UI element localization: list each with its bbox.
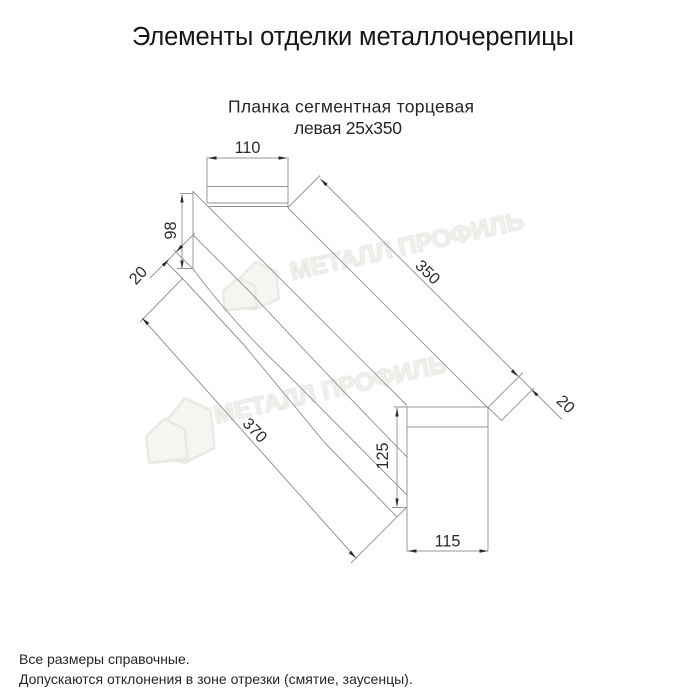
svg-text:125: 125 [374,442,392,469]
svg-text:Элементы отделки металлочерепи: Элементы отделки металлочерепицы [132,23,574,51]
svg-text:МЕТАЛЛ ПРОФИЛЬ: МЕТАЛЛ ПРОФИЛЬ [287,207,526,286]
svg-text:98: 98 [162,221,180,239]
svg-text:Допускаются отклонения в зоне: Допускаются отклонения в зоне отрезки (с… [19,671,413,687]
svg-text:350: 350 [412,257,444,289]
svg-text:20: 20 [553,392,578,417]
svg-text:115: 115 [435,533,461,551]
svg-text:Все размеры справочные.: Все размеры справочные. [19,651,190,667]
svg-text:Планка сегментная торцевая: Планка сегментная торцевая [228,97,474,117]
svg-text:110: 110 [235,139,261,157]
svg-text:левая 25х350: левая 25х350 [294,118,402,138]
svg-text:20: 20 [126,263,151,288]
